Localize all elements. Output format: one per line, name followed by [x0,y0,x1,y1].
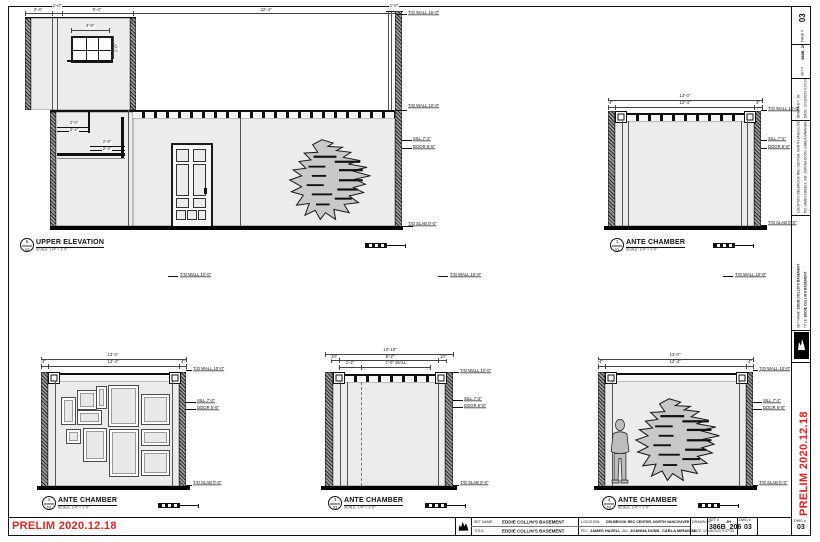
wall-layer-line [55,381,56,486]
elevation-leader [186,409,196,410]
elevation-leader [396,14,407,15]
prelim-stamp: PRELIM 2020.12.18 [12,520,117,532]
graphic-scale-bar [365,243,406,248]
titlebar-top-line [8,517,792,518]
ad2-value: CARLA MIRANDA [662,529,696,534]
crew: PD: JAMES HAZELL AD: JOANNA DUNN CARLA M… [804,122,808,213]
dim-tick [762,105,763,110]
dwg-no-value: 03 [744,524,752,531]
callout-sheet: 03 [330,506,340,510]
corner-post [615,111,627,123]
set-name: SET NAME: EDDIE COLLIN'S BASEMENT [797,264,801,328]
wall-layer-line [438,382,439,486]
callout-number: 4 [604,498,614,505]
elevation-leader [753,370,758,371]
hidden-line [361,382,362,486]
dim-label: 1'-0" [52,4,62,8]
set-no-label: SET # [801,67,805,76]
elevation-leader [761,225,767,226]
drawing-sheet: 2'-4" 1'-0" 5'-4" 22'-4" 3'-0" 2'-0" 2'-… [0,0,820,542]
callout-sheet: 03 [604,506,614,510]
dim-tick [339,358,340,363]
date: DATE: 12/18/2020 9:37:34 [804,79,808,118]
dim-label: 4" [41,360,46,364]
callout-number: 5 [22,240,32,247]
wall-layer-line [622,121,623,226]
picture-frame [141,429,170,446]
wall-hatch [608,111,615,230]
picture-frame [96,386,107,409]
picture-frame [83,428,107,462]
dim-label: 10" [439,355,447,359]
dim-tick [109,28,110,33]
view-scale: SCALE: 1/4" = 1'-0" [618,506,649,510]
dim-tick [71,28,72,33]
elevation-leader [453,372,459,373]
elevation-label: T/O SLAB 0'-0" [408,222,436,226]
tall-wall-line [388,12,389,110]
wall-hatch [25,18,31,110]
elevation-leader [453,400,463,401]
dim-label: 2'-4" [69,128,79,132]
elevation-label: SILL 7'-2" [768,137,786,141]
dim-tick [48,364,49,369]
elevation-label: T/O WALL 10'-0" [180,273,211,277]
artwork-graphic [634,397,722,483]
dim-label: 2'-0" [69,121,79,125]
dim-tick [361,365,362,370]
strip-border [791,6,792,536]
corner-post [435,372,447,384]
elevation-leader [761,140,767,141]
titlebar-divider [455,517,456,536]
callout-number: 1 [612,240,622,247]
elevation-leader [761,110,767,111]
callout-sheet: 03 [44,506,54,510]
wall-hatch [325,372,333,489]
elevation-label: T/O WALL 10'-0" [450,273,481,277]
wall-layer-line [52,18,53,110]
elevation-leader [396,110,407,111]
elevation-leader [453,407,463,408]
strip-setname-cell: SET NAME: EDDIE COLLIN'S BASEMENT TITLE:… [793,215,812,328]
graphic-scale-bar [425,503,466,508]
location: LOCATION: DELBROOK REC CENTER, NORTH VAN… [797,120,801,213]
title-value: EDDIE COLLIN'S BASEMENT [502,529,564,534]
pd-label: PD: [581,529,587,533]
elevation-label: DOOR 6'-8" [763,406,785,410]
dim-label: 1'-2" [345,361,355,365]
door-panel [176,198,189,208]
graphic-scale-bar [698,503,739,508]
tall-wall-line [391,12,392,110]
view-callout: 5 03 [20,238,34,252]
dim-tick [605,364,606,369]
wall-corner-line [128,110,129,226]
strip-drawn-cell: DRAWN BY: JH DATE: 12/18/2020 9:37:34 [793,78,812,118]
dwg-no-value: 03 [797,524,805,531]
elevation-label: SILL 7'-2" [413,137,431,141]
dim-label: 4" [180,360,185,364]
elevation-label: T/O SLAB 0'-0" [460,481,488,485]
wall-hatch [130,18,136,110]
dim-tick [186,364,187,369]
elevation-leader [438,276,448,277]
dim-label: 2'-0" [102,140,112,144]
dim-tick [133,11,134,16]
view-title: ANTE CHAMBER [344,497,403,506]
wall-layer-line [739,381,740,486]
elevation-label: T/O SLAB 0'-0" [193,481,221,485]
callout-number: 2 [44,498,54,505]
dim-tick [430,365,431,370]
elevation-label: DOOR 6'-8" [464,404,486,408]
strip-divider [791,362,810,363]
dim-label: 3'-0" [85,24,95,28]
wall-layer-line [628,121,629,226]
dim-tick [186,357,187,362]
human-figure [607,419,633,486]
view-title: UPPER ELEVATION [36,239,104,248]
corner-post [169,372,181,384]
dwg-no-label: DWG # [739,518,751,522]
view-scale: SCALE: 1/4" = 1'-0" [36,248,67,252]
view-scale: SCALE: 1/4" = 1'-0" [58,506,89,510]
dim-label: 2'-4" [33,8,43,12]
elevation-leader [402,148,412,149]
view-scale: SCALE: 1/4" = 1'-0" [626,248,657,252]
page-no-label: PAGE # [801,30,805,42]
dim-label: 4" [608,101,613,105]
wall-layer-line [741,121,742,226]
slab-line [37,486,190,490]
strip-setno-cell: SET # 386B_206 [793,44,812,76]
elevation-leader [761,148,767,149]
dim-line [41,366,186,367]
view-title: ANTE CHAMBER [618,497,677,506]
dim-label: 10" [330,355,338,359]
elevation-leader [186,402,196,403]
dim-line [71,30,109,31]
slab-line [50,226,403,230]
elevation-leader [753,402,762,403]
drawn-by: DRAWN BY: JH [797,95,801,118]
dim-label: 13'-0" [107,353,119,357]
graphic-scale-bar [713,243,754,248]
graphic-scale-bar [158,503,199,508]
dim-label: 12'-4" [679,101,691,105]
pd-value: JAMES HAZELL [590,529,621,534]
elevation-label: T/O WALL 10'-0" [735,273,766,277]
ad-value: JOANNA DUNN [630,529,659,534]
location-label: LOCATION: [581,520,600,524]
elevation-leader [186,485,192,486]
elevation-label: DOOR 6'-8" [768,145,790,149]
elevation-label: T/O WALL 16'-0" [408,11,439,15]
elevation-leader [753,485,758,486]
corner-post [744,111,756,123]
corner-post [605,372,617,384]
set-name-value: EDDIE COLLIN'S BASEMENT [502,520,564,525]
company-logo-icon [457,519,470,534]
wall-layer-line [747,121,748,226]
dim-label: 10'-10" [383,348,398,352]
strip-divider [791,330,810,331]
dim-tick [52,11,53,16]
dim-tick [325,352,326,357]
dim-label: 4" [747,360,752,364]
wall-hatch [746,372,753,489]
dim-label: 1'-0" [389,4,399,8]
window-sill [67,60,113,62]
picture-frame [66,429,81,444]
set-no-value: 386B_206 [800,44,805,60]
dim-label-vertical: 2'-0" [115,44,119,53]
set-name-label: SET NAME: [474,520,493,524]
set-no-value: 386B_206 [709,524,741,531]
stair-post [88,110,90,133]
elevation-leader [723,276,733,277]
dim-tick [753,357,754,362]
elevation-label: T/O WALL 10'-0" [759,367,790,371]
titlebar-divider [757,517,758,536]
wall [333,382,445,486]
dim-label: 7'-0" WALL [385,361,408,365]
dwg-no-label: DWG # [794,519,806,523]
door [171,143,213,230]
strip-location-cell: LOCATION: DELBROOK REC CENTER, NORTH VAN… [793,120,812,213]
dim-label: 4" [598,360,603,364]
elevation-label: DOOR 6'-8" [197,406,219,410]
titlebar-divider [578,517,579,536]
title: TITLE: EDDIE COLLIN'S BASEMENT [804,271,808,328]
wall-hatch [179,372,186,489]
corner-post [333,372,345,384]
dim-label: 12'-4" [669,360,681,364]
view-title: ANTE CHAMBER [626,239,685,248]
dim-tick [753,364,754,369]
callout-sheet: 03 [22,248,32,252]
date-label: DATE: [692,529,702,533]
elevation-leader [753,409,762,410]
elevation-leader [453,485,459,486]
dim-tick [453,352,454,357]
view-callout: 4 03 [602,496,616,510]
dim-tick [762,98,763,103]
picture-frame [141,450,170,476]
dim-label: 12'-4" [107,360,119,364]
wall-hatch [754,111,761,230]
view-title: ANTE CHAMBER [58,497,117,506]
dim-tick [339,365,340,370]
elevation-label: T/O WALL 10'-0" [193,367,224,371]
prelim-stamp-side: PRELIM 2020.12.18 [798,411,810,516]
slab-line [604,226,767,230]
door-panel [176,149,189,162]
dim-label: 9'-2" [385,355,395,359]
corner-post [48,372,60,384]
set-no-label: SET # [709,518,719,522]
wall-hatch [41,372,48,489]
wall-hatch [445,372,453,489]
dim-line [339,367,430,368]
door-panel [187,210,197,220]
dim-tick [25,11,26,16]
elevation-label: SILL 7'-2" [464,397,482,401]
wall-layer-line [57,18,58,110]
picture-frame [61,397,76,425]
window-rail [73,50,111,51]
corner-post [736,372,748,384]
titlebar-row-line [471,526,690,527]
view-scale: SCALE: 1/4" = 1'-0" [344,506,375,510]
door-panel [176,164,189,196]
dim-line [25,13,400,14]
wall-hatch [395,11,402,230]
strip-page-cell: PAGE # 03 [793,8,812,42]
upper-storey-wall [31,18,130,110]
slab-line [594,486,757,490]
elevation-leader [168,276,178,277]
door-panel [198,210,206,220]
dim-tick [615,105,616,110]
view-callout: 1 03 [610,238,624,252]
dim-label: 2'-4" [102,147,112,151]
picture-frame [109,429,139,477]
dim-label: 5'-4" [92,8,102,12]
page-no-value: 03 [798,13,807,22]
wall-layer-line [340,382,341,486]
stair-post [121,117,124,158]
picture-frame [141,394,170,425]
elevation-label: SILL 7'-2" [763,399,781,403]
stair-floor-edge [57,153,125,156]
wall-layer-line [347,382,348,486]
dim-line [608,107,762,108]
view-callout: 2 03 [42,496,56,510]
elevation-label: T/O SLAB 0'-0" [759,481,787,485]
wall-layer-line [172,381,173,486]
elevation-label: SILL 7'-2" [197,399,215,403]
wall-hatch [598,372,605,489]
dim-label: 13'-0" [679,94,691,98]
elevation-leader [186,370,192,371]
artwork-graphic [288,138,373,222]
dim-label: 13'-0" [669,353,681,357]
picture-frame [77,410,102,425]
dim-label: 4" [755,101,760,105]
door-knob [204,188,207,194]
titlebar-divider [471,517,472,536]
callout-number: 3 [330,498,340,505]
window [71,36,113,63]
strip-prelim-cell: PRELIM 2020.12.18 [794,364,813,516]
wall-joint-line [240,118,241,226]
wall [615,121,754,226]
location-value: DELBROOK REC CENTER, NORTH VANCOUVER [606,520,690,524]
ad-label: AD: [622,529,628,533]
picture-frame [77,390,97,410]
dim-label: 22'-4" [260,8,272,12]
elevation-label: T/O WALL 10'-0" [408,104,439,108]
slab-line [321,486,457,490]
elevation-label: DOOR 6'-8" [413,145,435,149]
door-panel [193,198,206,208]
stair-floor-line [57,158,125,159]
view-callout: 3 03 [328,496,342,510]
wall-hatch [50,112,56,230]
dim-line [598,366,753,367]
door-panel [193,149,206,162]
elevation-label: T/O WALL 10'-0" [460,369,491,373]
door-panel [176,210,186,220]
dim-tick [62,11,63,16]
title-label: TITLE: [474,529,485,533]
elevation-leader [402,140,412,141]
company-logo-icon [794,332,809,359]
picture-frame [108,385,139,427]
callout-sheet: 03 [612,248,622,252]
